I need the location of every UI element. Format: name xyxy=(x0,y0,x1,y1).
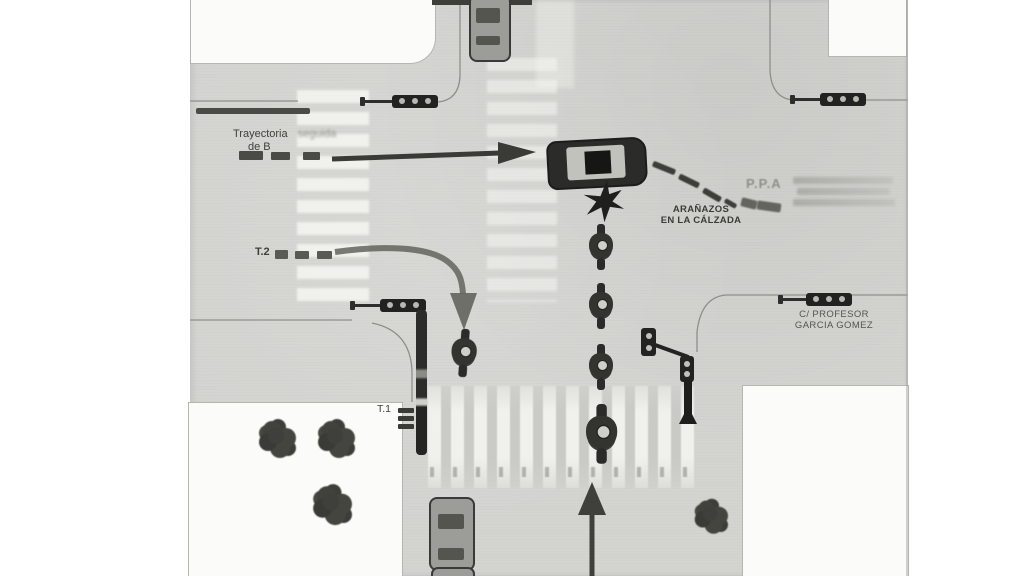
traffic-light-pole xyxy=(780,298,806,301)
moto-helmet xyxy=(597,360,608,371)
building-top-left xyxy=(190,0,436,64)
motorcycle-2 xyxy=(589,283,613,329)
motorcycle-1 xyxy=(589,224,613,270)
street-name-line2: GARCIA GOMEZ xyxy=(795,320,873,331)
crosswalk-edge-marks xyxy=(430,467,692,477)
moto-helmet xyxy=(597,240,608,251)
car-rear-window xyxy=(476,36,500,45)
motorcycle-4-on-crosswalk xyxy=(586,404,617,464)
scratches-line2: EN LA CÁLZADA xyxy=(661,215,742,226)
moto-helmet xyxy=(597,299,608,310)
illegible-faded-text xyxy=(793,177,897,210)
crosswalk-north-faint xyxy=(536,0,574,88)
car-b-center xyxy=(546,136,648,190)
car-south-street xyxy=(429,497,475,571)
scratches-line1: ARAÑAZOS xyxy=(673,204,729,215)
traffic-light-crossing-lower-head xyxy=(680,356,694,382)
car-rear-window xyxy=(438,548,464,560)
signal-pole-left xyxy=(416,310,427,455)
label-t2: T.2 xyxy=(255,246,270,259)
scanned-diagram-area xyxy=(190,0,908,576)
tree xyxy=(327,428,343,444)
traffic-light-mid-left xyxy=(352,298,426,312)
label-t1: T.1 xyxy=(377,403,391,415)
street-name-line1: C/ PROFESOR xyxy=(799,309,869,320)
motorcycle-3 xyxy=(589,344,613,390)
accident-sketch-page: Trayectoria seguida de B T.2 T.1 ARAÑAZO… xyxy=(0,0,1024,576)
car-south-street-partial xyxy=(431,567,475,576)
motorcycle-5-side xyxy=(450,328,479,378)
label-ppa: P.P.A xyxy=(746,177,782,192)
trajectory-b-subject: de B xyxy=(248,141,271,153)
tree xyxy=(323,494,340,511)
car-windshield xyxy=(438,514,464,529)
trajectory-b-text: Trayectoria xyxy=(233,128,288,140)
traffic-light-head xyxy=(820,93,866,106)
car-north-street xyxy=(469,0,511,62)
traffic-light-head xyxy=(806,293,852,306)
signal-bracket-t1 xyxy=(398,408,414,429)
traffic-light-head xyxy=(392,95,438,108)
traffic-light-top-right xyxy=(792,92,866,106)
tree xyxy=(703,507,717,521)
crosswalk-center xyxy=(487,58,557,302)
car-roof xyxy=(584,150,611,174)
moto-rear-wheel xyxy=(596,448,606,464)
moto-rear-wheel xyxy=(597,258,605,270)
trajectory-b-faint-text: seguida xyxy=(298,128,337,140)
illegible-text-line xyxy=(793,199,895,206)
label-street-name: C/ PROFESOR GARCIA GOMEZ xyxy=(782,310,886,332)
moto-rear-wheel xyxy=(597,378,605,390)
traffic-light-pole xyxy=(362,100,392,103)
label-trajectory-b: Trayectoria seguida de B xyxy=(233,128,336,153)
illegible-text-line xyxy=(793,177,893,184)
moto-rear-wheel xyxy=(597,317,605,329)
building-top-right xyxy=(828,0,907,57)
building-bottom-right xyxy=(742,385,909,576)
traffic-light-crossing-pole xyxy=(684,380,692,416)
traffic-light-pole xyxy=(792,98,820,101)
traffic-light-top-left xyxy=(362,94,438,108)
label-scratches: ARAÑAZOS EN LA CÁLZADA xyxy=(648,205,754,227)
tree xyxy=(268,428,284,444)
car-windshield xyxy=(476,8,500,23)
illegible-text-line xyxy=(797,188,890,195)
building-bottom-left xyxy=(188,402,403,576)
traffic-light-pole xyxy=(352,304,380,307)
traffic-light-mid-right xyxy=(780,292,852,306)
moto-helmet xyxy=(596,425,610,439)
moto-rear-wheel xyxy=(458,364,467,377)
crosswalk-west xyxy=(297,90,369,302)
